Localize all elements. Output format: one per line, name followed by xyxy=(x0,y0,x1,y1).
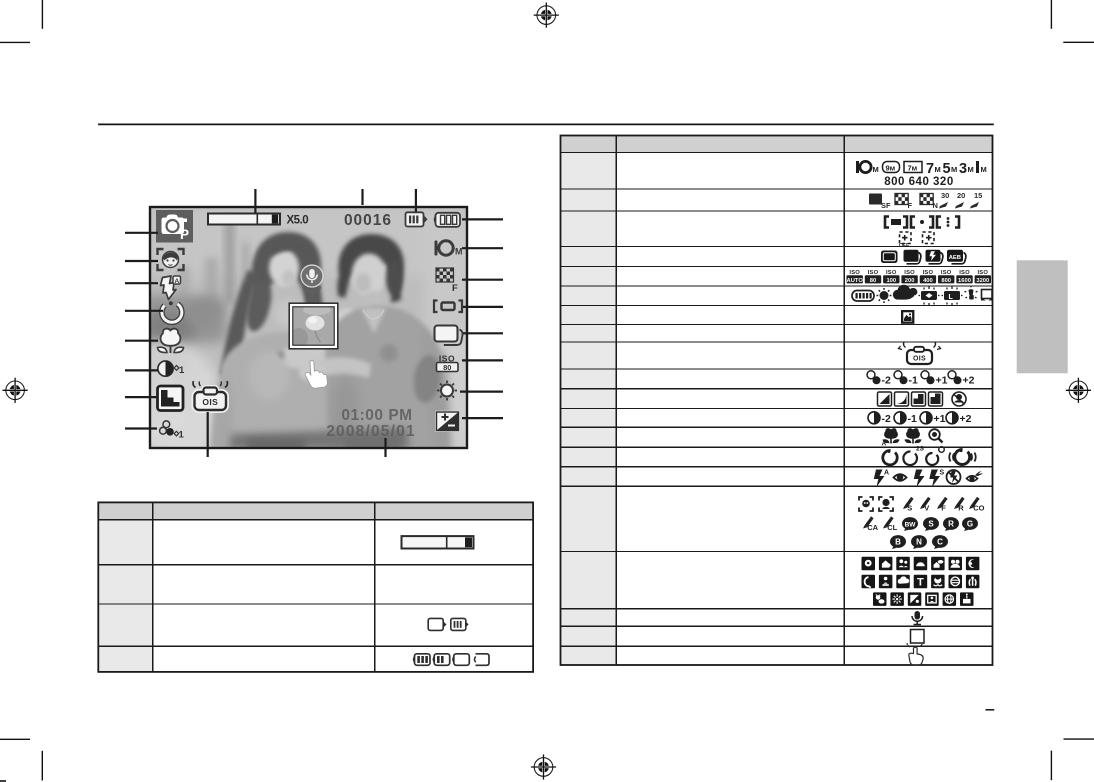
svg-text:+1: +1 xyxy=(936,375,948,387)
svg-text:G: G xyxy=(967,520,973,529)
svg-text:OIS: OIS xyxy=(202,397,218,407)
svg-text:CO: CO xyxy=(973,504,984,513)
svg-text:M: M xyxy=(873,165,879,174)
svg-text:T: T xyxy=(917,577,924,589)
svg-text:00016: 00016 xyxy=(344,212,392,229)
svg-text:9м: 9м xyxy=(886,163,896,172)
svg-text:3: 3 xyxy=(959,161,967,177)
svg-text:+2: +2 xyxy=(963,375,975,387)
svg-text:ISO: ISO xyxy=(959,270,970,276)
svg-text:F: F xyxy=(452,283,458,294)
svg-text:M: M xyxy=(968,165,974,174)
svg-text:M: M xyxy=(935,165,941,174)
svg-text:S: S xyxy=(940,470,945,477)
svg-text:CL: CL xyxy=(887,523,897,532)
svg-text:7: 7 xyxy=(926,161,934,177)
svg-text:400: 400 xyxy=(923,278,933,284)
svg-text:ISO: ISO xyxy=(923,270,934,276)
svg-text:2008/05/01: 2008/05/01 xyxy=(326,423,416,440)
svg-text:80: 80 xyxy=(443,363,451,372)
svg-text:AUTO: AUTO xyxy=(847,278,864,284)
svg-text:A: A xyxy=(882,441,887,448)
svg-text:A: A xyxy=(174,278,179,285)
svg-text:-1: -1 xyxy=(909,375,918,387)
svg-text:1: 1 xyxy=(179,365,185,376)
svg-text:ISO: ISO xyxy=(941,270,952,276)
svg-text:M: M xyxy=(981,165,987,174)
svg-text:ISO: ISO xyxy=(868,270,879,276)
svg-text:OIS: OIS xyxy=(913,356,926,363)
svg-text:20: 20 xyxy=(957,191,965,200)
svg-text:800 640 320: 800 640 320 xyxy=(884,176,953,188)
svg-text:V: V xyxy=(924,504,929,513)
svg-text:CA: CA xyxy=(867,523,878,532)
svg-text:C: C xyxy=(937,538,943,547)
svg-text:OFF: OFF xyxy=(899,243,909,249)
svg-text:R: R xyxy=(948,520,954,529)
svg-text:-1: -1 xyxy=(908,413,917,425)
svg-text:ISO: ISO xyxy=(886,270,897,276)
svg-text:BW: BW xyxy=(905,522,917,529)
svg-text:S: S xyxy=(928,520,934,529)
svg-text:30: 30 xyxy=(941,191,949,200)
svg-text:ISO: ISO xyxy=(904,270,915,276)
svg-text:F: F xyxy=(941,504,946,513)
svg-text:L: L xyxy=(949,294,954,301)
svg-text:5: 5 xyxy=(943,161,951,177)
svg-text:+2: +2 xyxy=(960,413,972,425)
svg-text:AEB: AEB xyxy=(949,255,961,261)
svg-text:R: R xyxy=(958,504,964,513)
svg-text:N: N xyxy=(933,201,938,210)
svg-text:100: 100 xyxy=(886,278,896,284)
svg-text:800: 800 xyxy=(941,278,951,284)
svg-text:A: A xyxy=(884,470,889,477)
svg-text:M: M xyxy=(455,247,463,257)
svg-text:200: 200 xyxy=(905,278,915,284)
svg-text:+1: +1 xyxy=(934,413,946,425)
svg-text:01:00 PM: 01:00 PM xyxy=(341,407,412,424)
svg-text:-2: -2 xyxy=(882,375,891,387)
svg-text:80: 80 xyxy=(870,278,876,284)
svg-text:2S: 2S xyxy=(916,446,925,453)
svg-text:M: M xyxy=(951,165,957,174)
svg-text:SF: SF xyxy=(881,201,891,210)
svg-text:S: S xyxy=(907,504,912,513)
svg-text:-2: -2 xyxy=(882,413,891,425)
svg-text:F: F xyxy=(908,201,913,210)
svg-text:ISO: ISO xyxy=(849,270,860,276)
svg-text:15: 15 xyxy=(974,191,982,200)
svg-text:P: P xyxy=(180,227,189,242)
svg-text:B: B xyxy=(895,538,901,547)
svg-text:N: N xyxy=(916,538,922,547)
svg-text:7м: 7м xyxy=(908,163,918,172)
svg-text:3200: 3200 xyxy=(976,278,989,284)
svg-text:ISO: ISO xyxy=(978,270,989,276)
svg-text:1600: 1600 xyxy=(958,278,971,284)
svg-text:X5.0: X5.0 xyxy=(287,214,309,226)
svg-text:1: 1 xyxy=(179,430,185,441)
